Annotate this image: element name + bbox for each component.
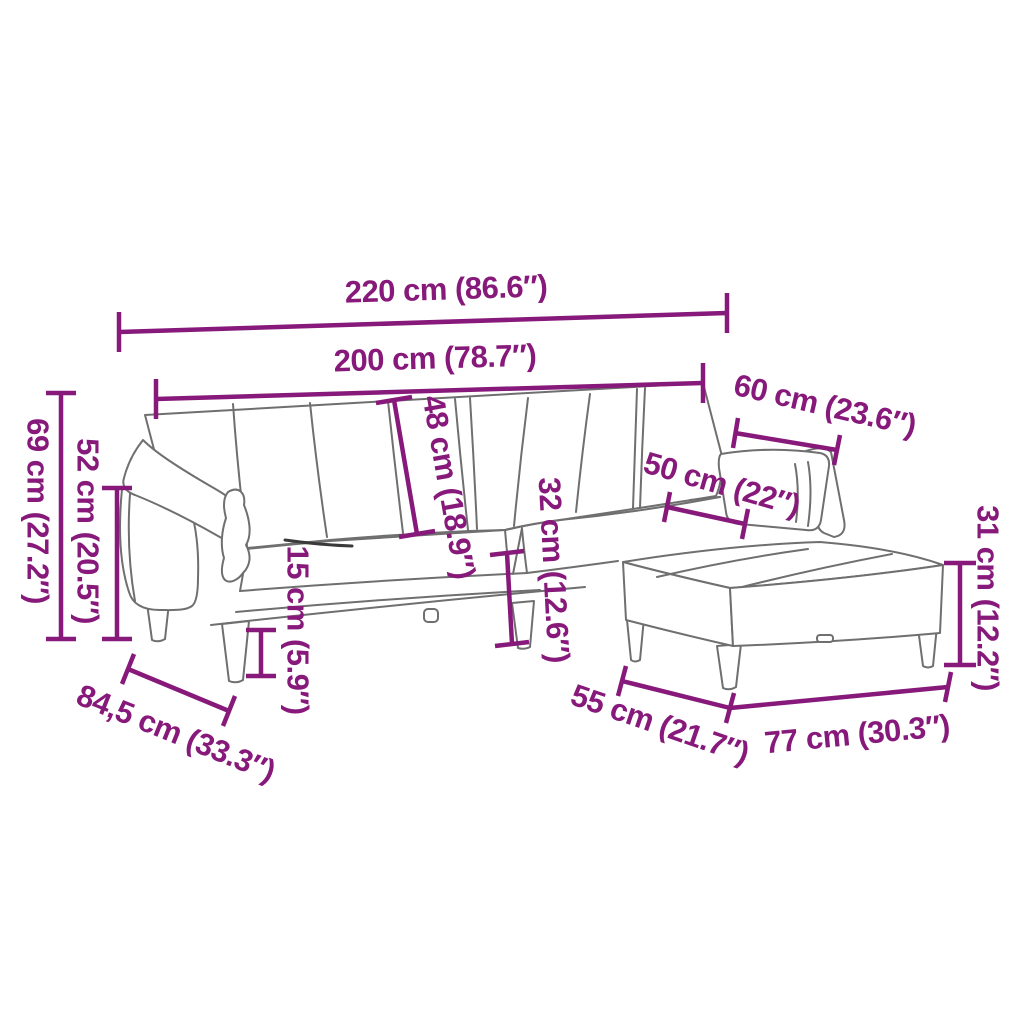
dimension-footstool-width: 77 cm (30.3″) bbox=[730, 672, 951, 760]
label-depth-sofa: 84,5 cm (33.3″) bbox=[72, 677, 280, 788]
dimension-height-leg: 15 cm (5.9″) bbox=[246, 545, 316, 714]
dimension-width-total: 220 cm (86.6″) bbox=[119, 268, 727, 352]
label-pillow-length: 60 cm (23.6″) bbox=[731, 367, 920, 443]
sofa-leg-front-left bbox=[222, 621, 249, 682]
sofa-legs bbox=[146, 594, 534, 682]
footstool bbox=[623, 542, 943, 689]
label-footstool-height: 31 cm (12.2″) bbox=[971, 505, 1006, 691]
label-height-total: 69 cm (27.2″) bbox=[21, 418, 56, 604]
dimension-footstool-height: 31 cm (12.2″) bbox=[944, 505, 1006, 691]
label-footstool-width: 77 cm (30.3″) bbox=[763, 708, 951, 761]
footstool-handle bbox=[817, 635, 833, 642]
dimension-height-total: 69 cm (27.2″) bbox=[21, 393, 77, 639]
sofa-bed-drawing bbox=[120, 383, 943, 689]
label-width-total: 220 cm (86.6″) bbox=[344, 268, 548, 309]
label-height-leg: 15 cm (5.9″) bbox=[281, 545, 316, 714]
diagram-canvas: 220 cm (86.6″) 200 cm (78.7″) 69 cm (27.… bbox=[0, 0, 1024, 1024]
product-dimension-diagram: 220 cm (86.6″) 200 cm (78.7″) 69 cm (27.… bbox=[0, 0, 1024, 1024]
footstool-leg-front bbox=[717, 644, 741, 689]
sofa-foot-middle bbox=[424, 609, 438, 622]
label-width-seat: 200 cm (78.7″) bbox=[333, 338, 537, 379]
label-height-armrest: 52 cm (20.5″) bbox=[71, 438, 106, 624]
